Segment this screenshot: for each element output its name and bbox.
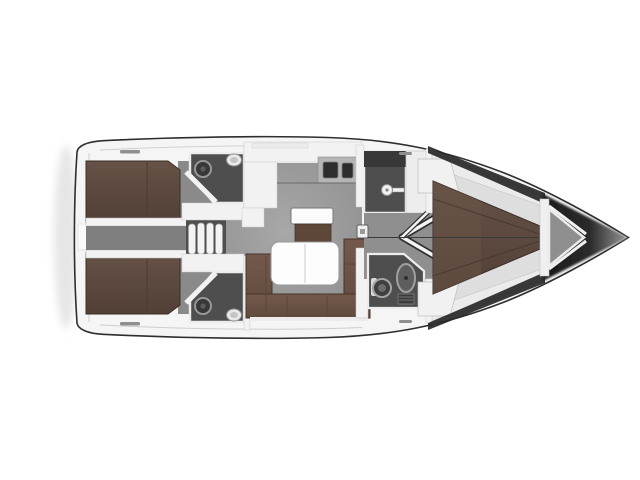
anchor-locker-bulkhead xyxy=(540,199,549,276)
salon-table xyxy=(271,242,339,285)
cleat-aft-starboard xyxy=(120,322,140,326)
deck-hatch xyxy=(252,143,308,148)
starboard-aft-head-toilet-bowl xyxy=(230,312,238,318)
settee-bench xyxy=(246,294,370,318)
landing-starboard xyxy=(182,254,244,272)
port-aft-head-toilet-bowl xyxy=(230,157,238,163)
step-4 xyxy=(216,224,223,254)
cleat-aft-port xyxy=(120,150,140,154)
door-latch-plate xyxy=(360,229,365,234)
cleat-fwd-port xyxy=(399,152,412,155)
corridor-floor xyxy=(86,226,188,250)
starboard-aft-head-sink-drain xyxy=(200,303,205,308)
settee-base-trim xyxy=(250,317,368,321)
galley-sink-right xyxy=(342,163,353,178)
step-2 xyxy=(198,223,205,254)
fwd-head-toilet-bowl xyxy=(378,284,386,292)
floor-plan-canvas xyxy=(0,0,640,480)
galley-sink-left xyxy=(323,162,338,178)
starboard-aft-berth xyxy=(86,253,180,314)
shower-head-center xyxy=(385,188,388,191)
galley-counter-leg xyxy=(244,162,277,208)
port-aft-berth xyxy=(86,161,180,222)
fwd-head-grate xyxy=(398,294,414,304)
step-1 xyxy=(189,224,196,254)
landing-port xyxy=(182,203,244,220)
chart-cabinet-top xyxy=(291,208,333,224)
yacht-floor-plan xyxy=(0,0,640,480)
shower-room xyxy=(364,151,406,213)
galley-end-cabinet xyxy=(242,208,264,227)
step-3 xyxy=(207,223,214,254)
fwd-head-sink-drain xyxy=(404,276,408,280)
companionway-steps xyxy=(186,220,226,256)
cleat-fwd-starboard xyxy=(399,320,412,323)
chart-station xyxy=(291,208,333,246)
port-aft-head-sink-drain xyxy=(200,166,205,171)
